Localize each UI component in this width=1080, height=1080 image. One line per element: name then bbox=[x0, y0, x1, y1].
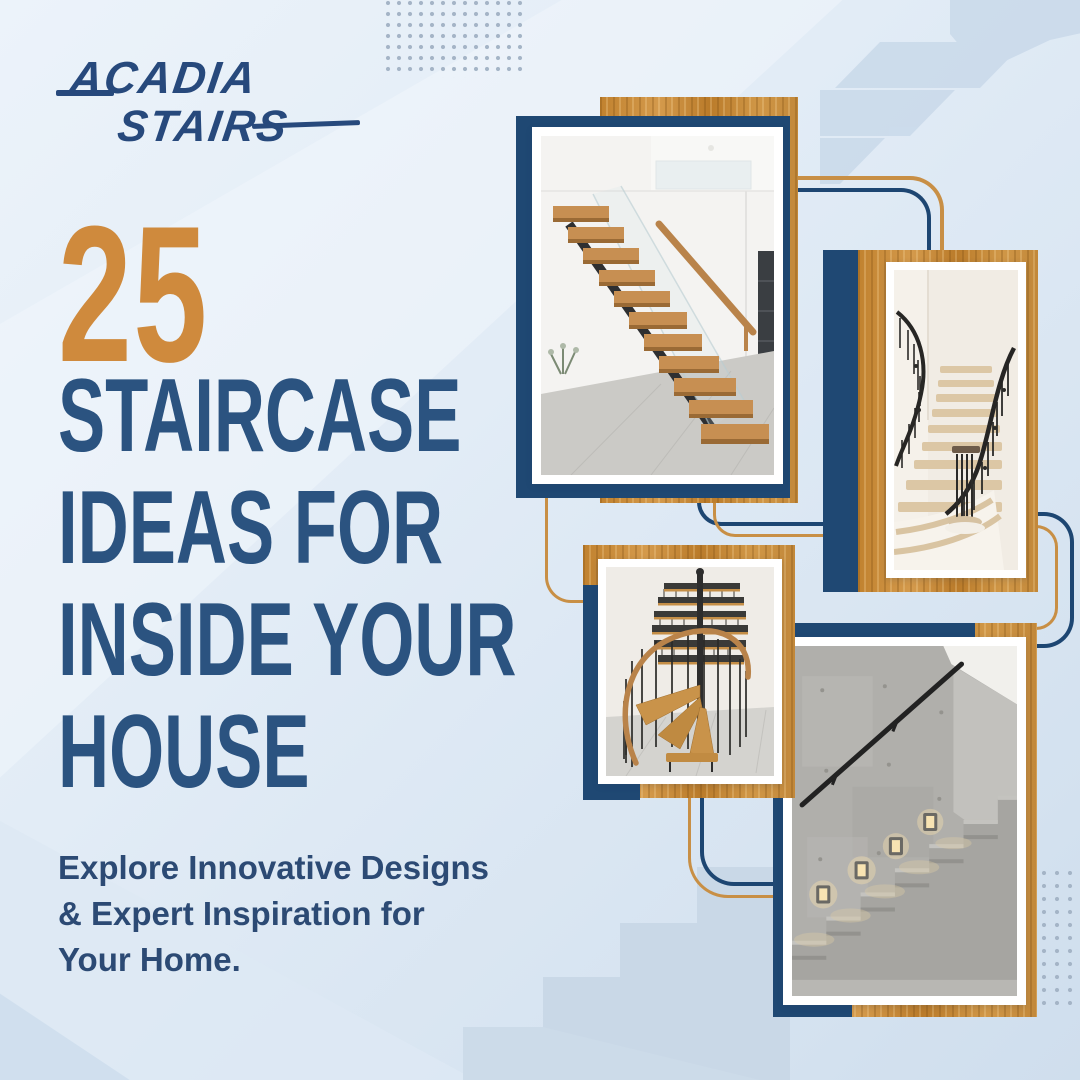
connector-navy-top bbox=[798, 188, 931, 254]
logo-line-1: ACADIA bbox=[66, 52, 260, 104]
dot-grid-right bbox=[1041, 870, 1080, 1005]
subtitle-line-1: Explore Innovative Designs bbox=[58, 845, 578, 891]
headline-line-2: IDEAS FOR bbox=[58, 472, 412, 584]
headline-line-3: INSIDE YOUR bbox=[58, 584, 412, 696]
connector-navy-bottom bbox=[700, 798, 779, 886]
photo4-navy-left-bar bbox=[773, 798, 783, 1017]
photo4-navy-top-bar bbox=[783, 623, 975, 637]
subtitle-line-2: & Expert Inspiration for bbox=[58, 891, 578, 937]
stair-pattern-top-right bbox=[820, 0, 1080, 200]
photo-curved-staircase bbox=[886, 262, 1026, 578]
photo-spiral-staircase bbox=[598, 559, 782, 784]
photo3-navy-bottom-bar bbox=[583, 783, 640, 800]
photo3-navy-left-bar bbox=[583, 585, 598, 800]
dot-grid-top bbox=[385, 0, 525, 78]
subtitle: Explore Innovative Designs & Expert Insp… bbox=[58, 845, 578, 983]
connector-orange-mid bbox=[713, 498, 826, 537]
brand-logo: ACADIA STAIRS bbox=[56, 52, 336, 172]
poster-canvas: ACADIA STAIRS 25 STAIRCASE IDEAS FOR INS… bbox=[0, 0, 1080, 1080]
photo-concrete-staircase bbox=[783, 637, 1026, 1005]
concrete-staircase-illustration bbox=[792, 646, 1017, 996]
headline-line-4: HOUSE bbox=[58, 696, 412, 808]
headline: STAIRCASE IDEAS FOR INSIDE YOUR HOUSE bbox=[58, 360, 578, 808]
spiral-staircase-illustration bbox=[606, 567, 774, 776]
headline-line-1: STAIRCASE bbox=[58, 360, 412, 472]
photo4-navy-bottom-bar bbox=[783, 1005, 852, 1017]
subtitle-line-3: Your Home. bbox=[58, 937, 578, 983]
curved-staircase-illustration bbox=[894, 270, 1018, 570]
